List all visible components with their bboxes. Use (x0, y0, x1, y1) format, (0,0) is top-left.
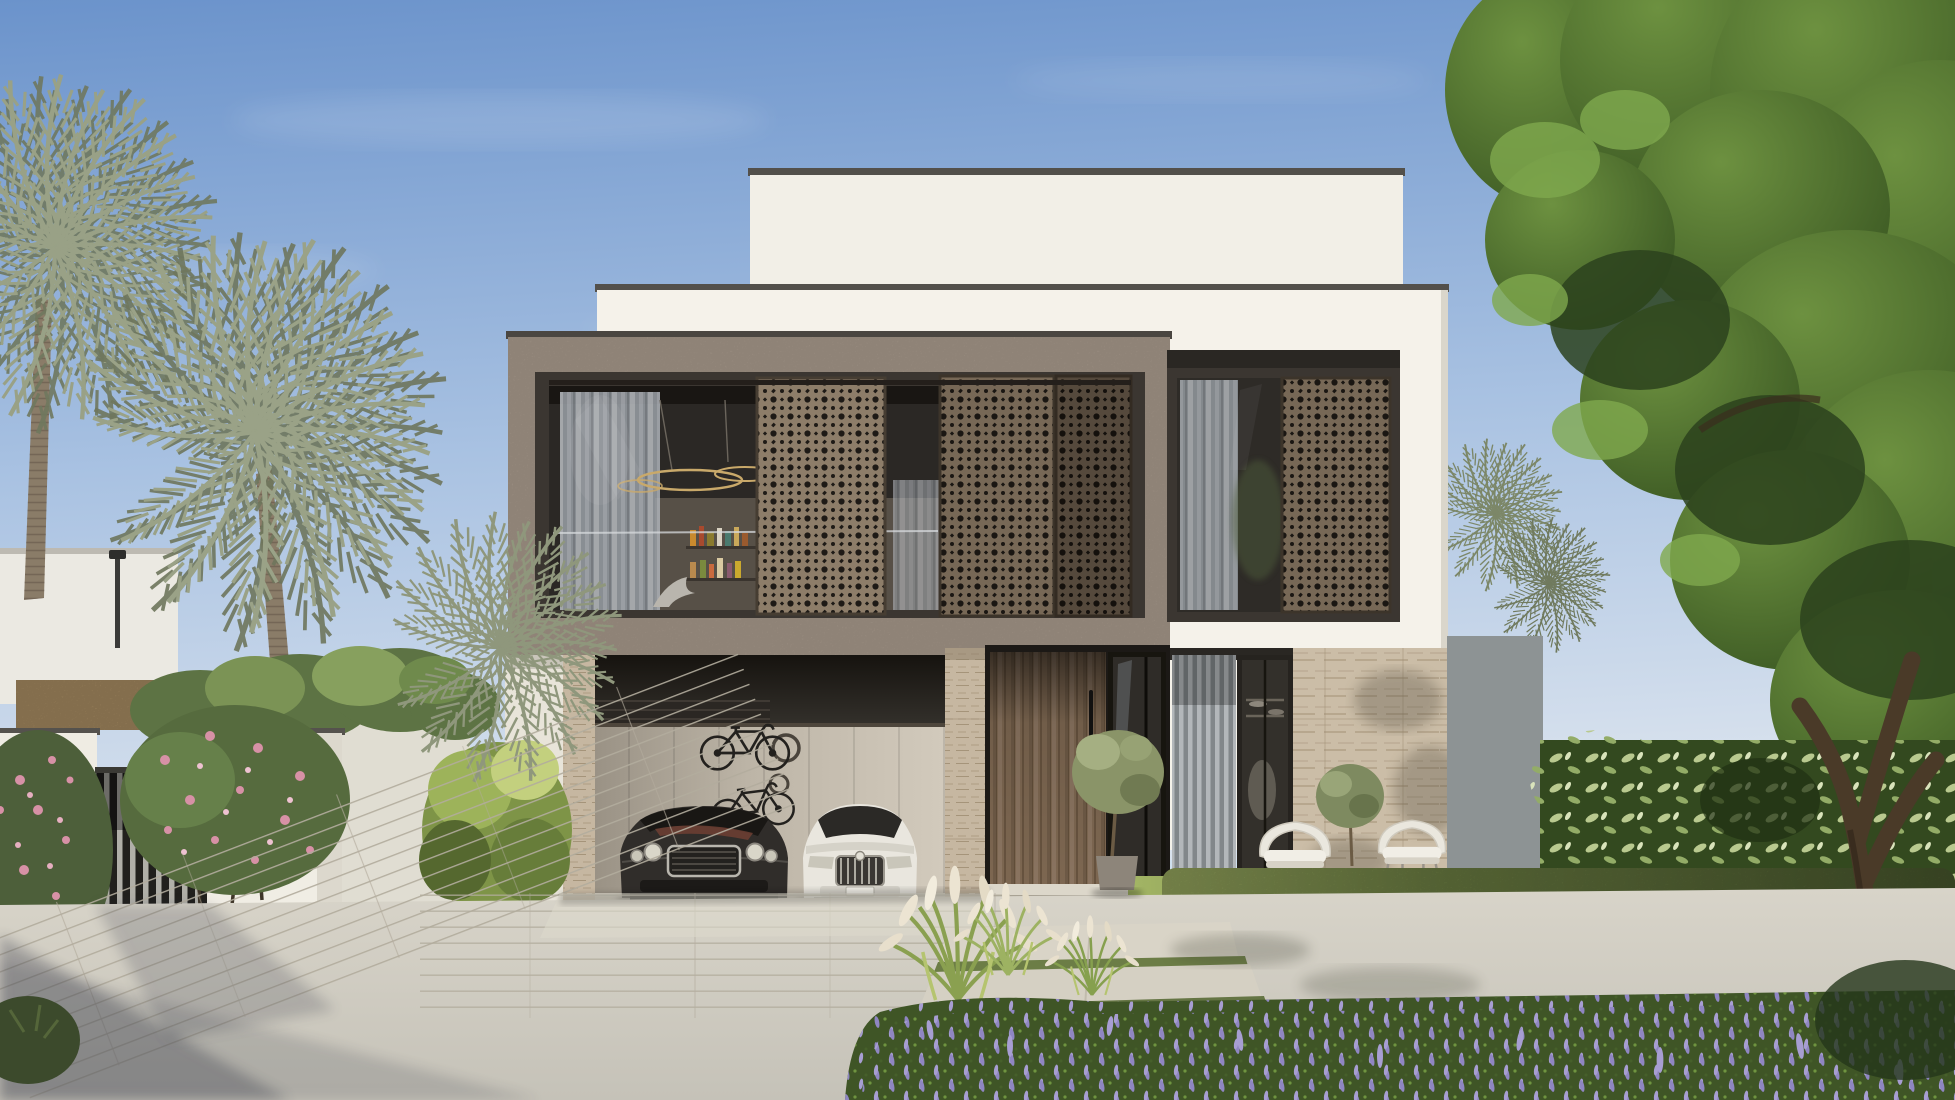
right-window-screen (1282, 378, 1390, 612)
chrome-mesh-grille (668, 846, 740, 876)
render-canvas (0, 0, 1955, 1100)
headlight-white-car-right (886, 856, 912, 869)
tree-reflection (1232, 460, 1284, 580)
mashrabiya-panel-3 (1056, 376, 1131, 616)
right-window-curtain (1180, 380, 1238, 610)
upper-roof-box (748, 168, 1405, 292)
mashrabiya-panel-1 (757, 378, 885, 614)
upper-floor-stone-box (506, 331, 1172, 655)
emblem-star (856, 852, 865, 861)
mashrabiya-panel-2 (940, 376, 1054, 616)
interior-figure (1248, 760, 1276, 820)
shaded-gray-wall (1447, 636, 1543, 886)
plant-pot (1096, 856, 1138, 890)
right-upper-window (1167, 350, 1400, 622)
curtain-mid (893, 480, 939, 610)
headlight-white-car-left (808, 856, 834, 869)
villa-exterior-render (0, 0, 1955, 1100)
headlight-dark-car-r1 (747, 844, 764, 861)
